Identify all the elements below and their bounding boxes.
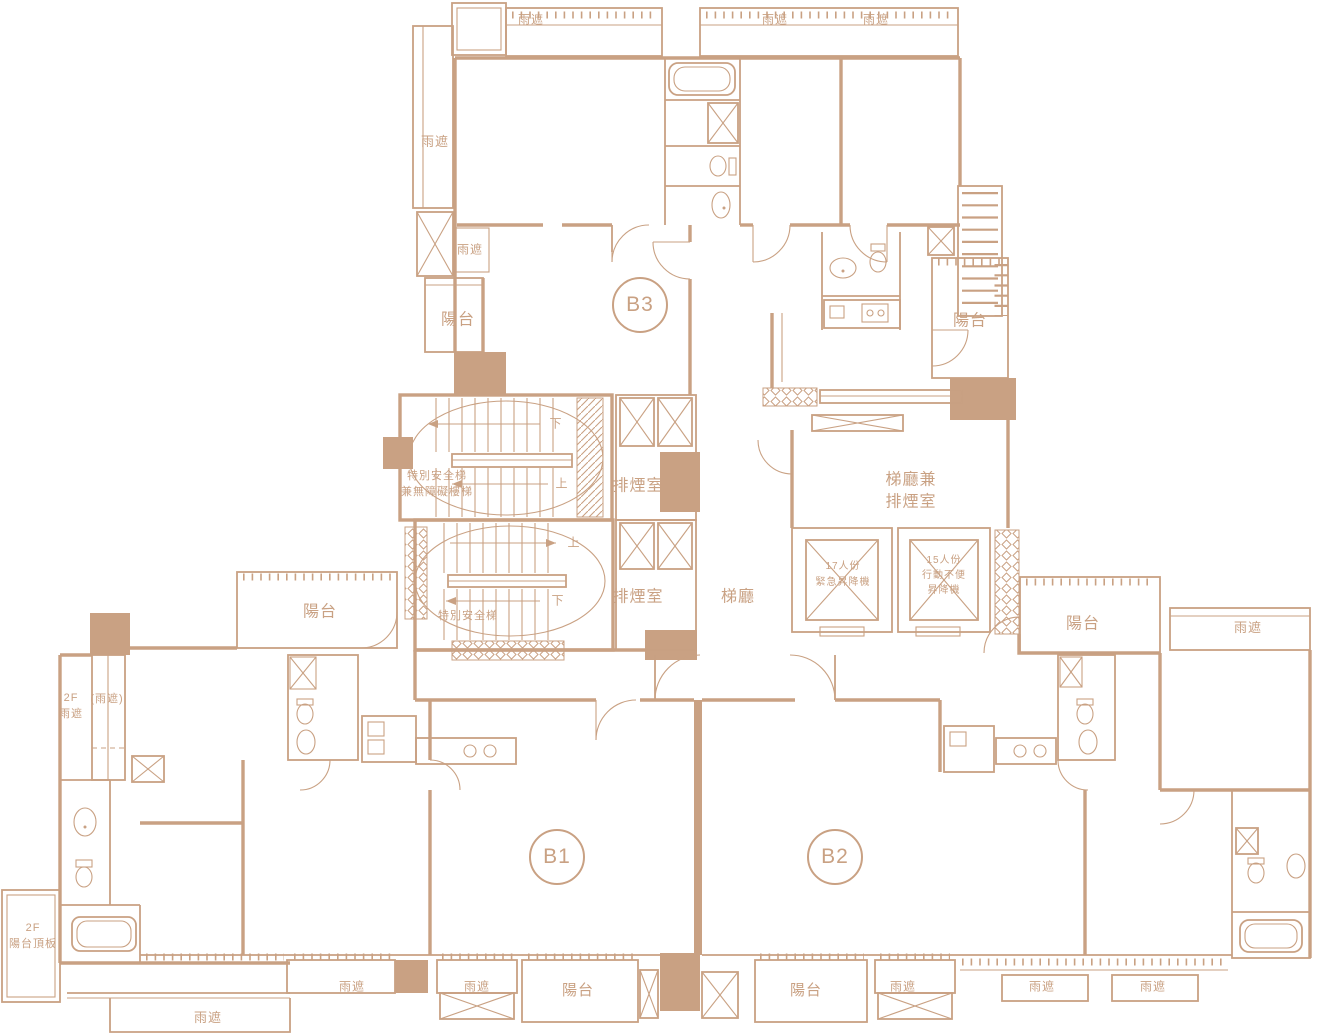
plan-label: 梯廳 — [721, 590, 755, 607]
plan-label: 雨遮 — [762, 14, 788, 27]
plan-label: 雨遮 — [339, 981, 365, 994]
plan-label: 雨遮 — [194, 1011, 222, 1025]
plan-label: 下 — [549, 418, 562, 431]
plan-label: 緊急昇降機 — [816, 578, 871, 589]
plan-label: 梯廳兼 — [885, 473, 936, 490]
plan-label: 雨遮 — [1029, 981, 1055, 994]
plan-label: 17人份 — [825, 562, 860, 573]
plan-label: 排煙室 — [885, 495, 936, 512]
plan-label: (雨遮) — [90, 694, 123, 706]
plan-label: 上 — [567, 537, 580, 550]
plan-label: 上 — [555, 478, 568, 491]
plan-label: 2F — [26, 923, 41, 935]
plan-label: 雨遮 — [464, 981, 490, 994]
plan-label: 下 — [551, 595, 564, 608]
plan-label: 陽台 — [953, 314, 987, 331]
plan-label: 排煙室 — [612, 590, 663, 607]
plan-label: 雨遮 — [890, 981, 916, 994]
plan-label: 雨遮 — [421, 135, 449, 149]
plan-label: 2F — [64, 693, 79, 705]
floor-plan: 雨遮雨遮雨遮雨遮雨遮陽台陽台特別安全梯兼無障礙樓梯排煙室下上梯廳兼排煙室上下特別… — [0, 0, 1334, 1036]
plan-label: 兼無障礙樓梯 — [401, 487, 473, 499]
plan-label: 特別安全梯 — [438, 611, 498, 623]
plan-label: 行動不便 — [922, 571, 966, 582]
plan-label: 排煙室 — [612, 479, 663, 496]
plan-label: 雨遮 — [1234, 621, 1262, 635]
plan-label: 雨遮 — [457, 244, 483, 257]
plan-label: 雨遮 — [59, 709, 83, 721]
plan-label: 陽台 — [303, 605, 337, 622]
plan-label: 陽台 — [441, 313, 475, 330]
plan-label: 陽台頂板 — [9, 939, 57, 951]
unit-badge: B2 — [807, 829, 863, 885]
plan-label: 陽台 — [562, 983, 594, 999]
unit-badge: B1 — [529, 829, 585, 885]
unit-badge: B3 — [612, 277, 668, 333]
plan-label: 雨遮 — [863, 14, 889, 27]
plan-label: 雨遮 — [1140, 981, 1166, 994]
plan-label: 陽台 — [790, 983, 822, 999]
plan-label: 昇降機 — [928, 586, 961, 597]
plan-label: 特別安全梯 — [407, 471, 467, 483]
plan-label: 陽台 — [1066, 617, 1100, 634]
floor-plan-drawing — [0, 0, 1334, 1036]
plan-label: 15人份 — [926, 556, 961, 567]
plan-label: 雨遮 — [518, 14, 544, 27]
